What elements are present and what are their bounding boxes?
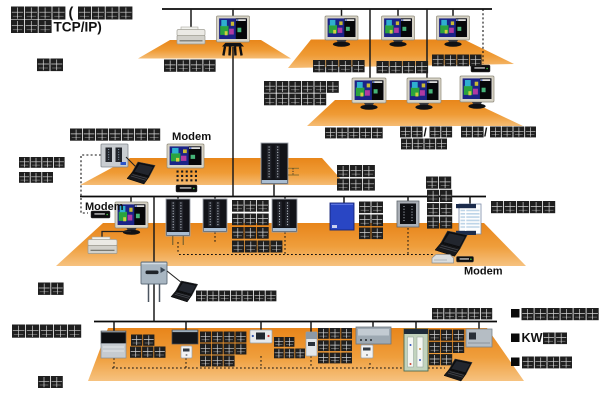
svg-text:Modem: Modem bbox=[85, 201, 124, 213]
svg-text:Modem: Modem bbox=[172, 131, 211, 143]
svg-text:Modem: Modem bbox=[464, 266, 503, 278]
svg-text:KW: KW bbox=[522, 331, 543, 345]
svg-text:TCP/IP): TCP/IP) bbox=[54, 20, 102, 35]
